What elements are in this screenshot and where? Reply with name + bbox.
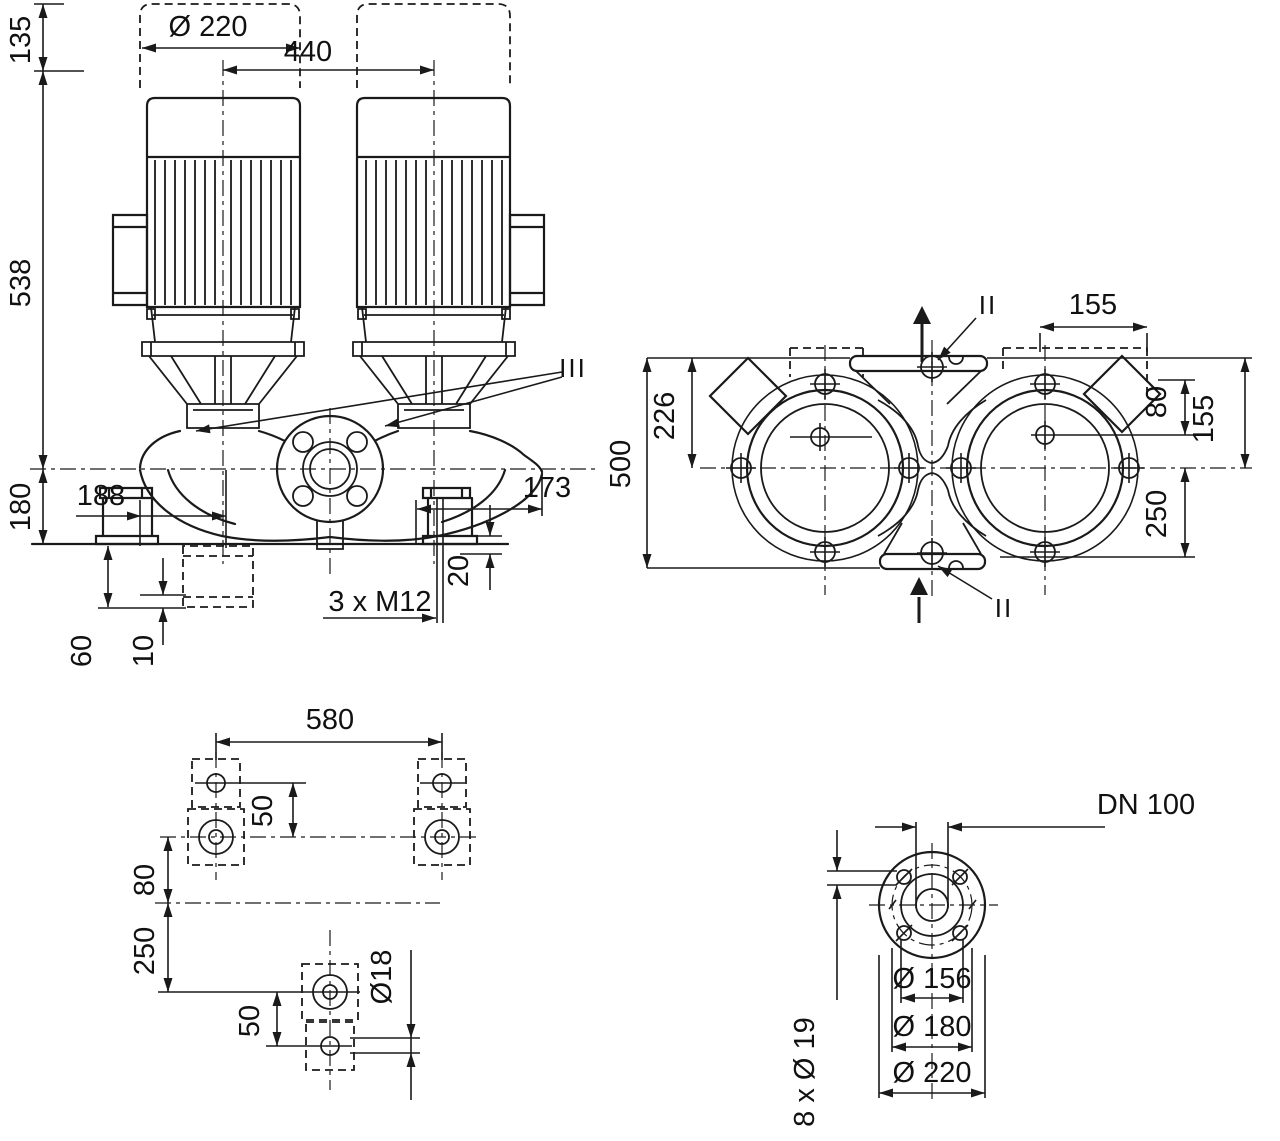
- dim-20-label: 20: [443, 555, 475, 587]
- dim-80-foundation-label: 80: [129, 864, 161, 896]
- dim-250-foundation-label: 250: [129, 927, 161, 975]
- plan-view: 155 II 226 500 80 155 250 II: [605, 289, 1252, 623]
- dim-180-label: 180: [5, 483, 37, 531]
- dim-500-label: 500: [605, 440, 637, 488]
- dim-10-label: 10: [128, 635, 160, 667]
- dim-155-right-label: 155: [1188, 395, 1220, 443]
- dim-155-top-label: 155: [1069, 289, 1117, 321]
- dim-250-plan-label: 250: [1141, 490, 1173, 538]
- motor-fins: [155, 160, 502, 305]
- discharge-flange-top: [850, 356, 987, 371]
- dim-156-label: Ø 156: [893, 963, 972, 995]
- dim-motor-diameter-label: Ø 220: [169, 11, 248, 43]
- suction-flange-hidden: [183, 546, 253, 607]
- dim-188-label: 188: [77, 480, 125, 512]
- dim-50-bottom-label: 50: [234, 1005, 266, 1037]
- dim-50-top-label: 50: [247, 795, 279, 827]
- technical-drawing-page: 135 Ø 220 440 538 180 188 173 20 3 x M12…: [0, 0, 1280, 1141]
- dim-bolt-holes-label: 8 x Ø 19: [789, 1017, 821, 1127]
- section-mark-III: III: [559, 353, 587, 383]
- pump-dimension-drawing: 135 Ø 220 440 538 180 188 173 20 3 x M12…: [0, 0, 1280, 1141]
- dim-80-plan-label: 80: [1141, 386, 1173, 418]
- flange-detail: DN 100 Ø 156 Ø 180 Ø 220 8 x Ø 19: [789, 789, 1195, 1127]
- dim-m12-label: 3 x M12: [328, 586, 431, 618]
- dim-135-label: 135: [5, 16, 37, 64]
- dim-hole-diameter-label: Ø18: [366, 950, 398, 1005]
- dim-dn100-label: DN 100: [1097, 789, 1195, 821]
- dim-flange-220-label: Ø 220: [893, 1057, 972, 1089]
- section-mark-II-top: II: [979, 290, 997, 320]
- dim-173-label: 173: [523, 472, 571, 504]
- foundation-centerlines: [155, 752, 480, 1090]
- dim-580-label: 580: [306, 704, 354, 736]
- dim-226-label: 226: [649, 392, 681, 440]
- dim-538-label: 538: [5, 259, 37, 307]
- foundation-plan: 580 50 80 250 50 Ø18: [129, 704, 480, 1100]
- terminal-boxes: [113, 215, 544, 305]
- front-view: 135 Ø 220 440 538 180 188 173 20 3 x M12…: [5, 4, 600, 667]
- dim-60-label: 60: [66, 635, 98, 667]
- dim-flange-180-label: Ø 180: [893, 1011, 972, 1043]
- foundation-dimension-lines: [158, 733, 465, 1100]
- section-mark-II-bottom: II: [995, 593, 1013, 623]
- motor-bodies: [147, 98, 510, 307]
- dim-440-label: 440: [284, 36, 332, 68]
- anchor-pockets-dashed: [188, 759, 470, 1070]
